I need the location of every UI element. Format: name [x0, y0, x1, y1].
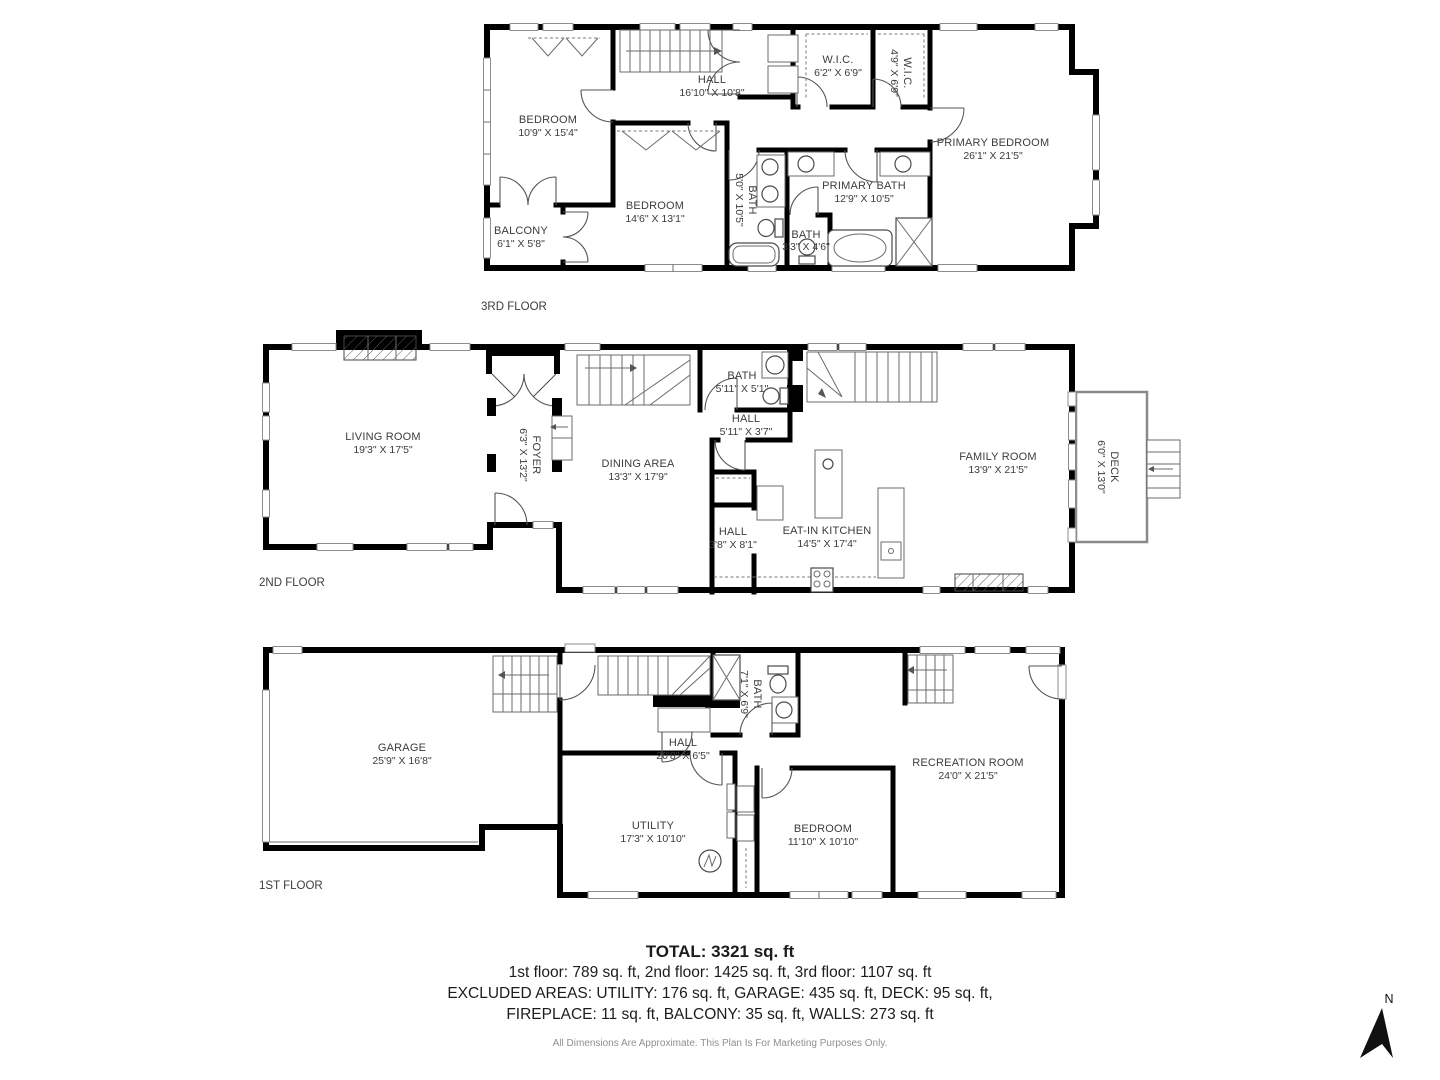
room-label-garage: GARAGE 25'9" X 16'8"	[372, 742, 432, 767]
sink-icon	[823, 459, 833, 469]
bathtub-icon	[828, 230, 892, 266]
svg-text:3'3" X 4'6": 3'3" X 4'6"	[782, 241, 830, 253]
room-label-hall-3: HALL 16'10" X 10'8"	[679, 74, 744, 99]
floor-2-stairs-main	[807, 352, 937, 402]
svg-text:UTILITY: UTILITY	[632, 820, 675, 832]
svg-text:6'2" X 6'9": 6'2" X 6'9"	[814, 67, 862, 79]
room-label-family-room: FAMILY ROOM 13'9" X 21'5"	[959, 451, 1037, 476]
svg-text:BEDROOM: BEDROOM	[626, 200, 684, 212]
room-label-hall-1f: HALL 20'8" X 6'5"	[656, 737, 710, 762]
svg-text:25'9" X 16'8": 25'9" X 16'8"	[372, 755, 432, 767]
svg-text:13'9" X 21'5": 13'9" X 21'5"	[968, 464, 1028, 476]
svg-text:24'0" X 21'5": 24'0" X 21'5"	[938, 770, 998, 782]
room-label-primary-bath: PRIMARY BATH 12'9" X 10'5"	[822, 180, 906, 205]
shower-icon	[713, 655, 740, 700]
svg-text:BALCONY: BALCONY	[494, 225, 548, 237]
svg-text:LIVING ROOM: LIVING ROOM	[345, 431, 421, 443]
svg-text:5'11" X 5'1": 5'11" X 5'1"	[716, 383, 769, 395]
sink-icon	[762, 186, 778, 202]
svg-text:12'9" X 10'5": 12'9" X 10'5"	[834, 193, 894, 205]
room-label-bedroom-1f: BEDROOM 11'10" X 10'10"	[788, 823, 859, 848]
svg-text:16'10" X 10'8": 16'10" X 10'8"	[679, 87, 744, 99]
svg-text:HALL: HALL	[732, 413, 760, 425]
sink-icon	[798, 156, 814, 172]
toilet-icon	[758, 219, 783, 237]
svg-text:BEDROOM: BEDROOM	[519, 114, 577, 126]
floor-3-plan: BEDROOM 10'9" X 15'4" HALL 16'10" X 10'8…	[481, 24, 1100, 314]
floor-1-label: 1ST FLOOR	[259, 880, 323, 892]
stove-icon	[811, 568, 833, 592]
room-label-primary-bedroom: PRIMARY BEDROOM 26'1" X 21'5"	[937, 137, 1050, 162]
excluded-areas-line-2: FIREPLACE: 11 sq. ft, BALCONY: 35 sq. ft…	[0, 1004, 1440, 1025]
toilet-icon	[768, 666, 788, 693]
hall-closet	[658, 708, 710, 732]
svg-text:10'9" X 15'4": 10'9" X 15'4"	[518, 127, 578, 139]
svg-text:BATH: BATH	[746, 185, 758, 214]
svg-text:W.I.C.: W.I.C.	[901, 57, 913, 88]
floor-2-plan: LIVING ROOM 19'3" X 17'5" FOYER 6'3" X 1…	[259, 330, 1180, 594]
fireplace-living-room	[336, 330, 422, 360]
room-label-dining-area: DINING AREA 13'3" X 17'9"	[601, 458, 675, 483]
sink-icon	[776, 702, 792, 718]
room-label-foyer: FOYER 6'3" X 13'2"	[517, 428, 542, 482]
svg-text:W.I.C.: W.I.C.	[822, 54, 853, 66]
svg-text:6'3" X 13'2": 6'3" X 13'2"	[517, 428, 529, 482]
svg-text:14'6" X 13'1": 14'6" X 13'1"	[625, 213, 685, 225]
floor-1-stairs-main	[598, 656, 710, 695]
sink-icon	[766, 356, 784, 374]
room-label-recreation-room: RECREATION ROOM 24'0" X 21'5"	[912, 757, 1024, 782]
garage-door-side	[263, 690, 270, 842]
floor-1-plan: GARAGE 25'9" X 16'8" HALL 20'8" X 6'5" B…	[259, 644, 1066, 899]
svg-text:BATH: BATH	[791, 229, 820, 241]
svg-text:7'1" X 6'9": 7'1" X 6'9"	[738, 670, 750, 718]
room-label-wic-1: W.I.C. 6'2" X 6'9"	[814, 54, 862, 79]
svg-text:6'0" X 13'0": 6'0" X 13'0"	[1095, 440, 1107, 494]
excluded-areas-line-1: EXCLUDED AREAS: UTILITY: 176 sq. ft, GAR…	[0, 983, 1440, 1004]
shower-icon	[896, 218, 932, 266]
floor-1-stairs-entry	[493, 656, 557, 712]
svg-text:3'8" X 8'1": 3'8" X 8'1"	[709, 539, 757, 551]
floor-3-label: 3RD FLOOR	[481, 301, 547, 313]
svg-text:BEDROOM: BEDROOM	[794, 823, 852, 835]
floor-3-stairs	[620, 30, 722, 72]
svg-text:13'3" X 17'9": 13'3" X 17'9"	[608, 471, 668, 483]
kitchen-counter	[878, 488, 904, 578]
svg-text:DECK: DECK	[1108, 451, 1120, 483]
sink-icon	[762, 159, 778, 175]
deck	[1068, 392, 1180, 542]
room-label-bath-1: BATH 5'0" X 10'5"	[733, 173, 758, 227]
floor-plan-page: BEDROOM 10'9" X 15'4" HALL 16'10" X 10'8…	[0, 0, 1440, 1080]
utility-fixtures	[699, 784, 735, 872]
dishwasher-icon	[881, 542, 901, 560]
floor-2-label: 2ND FLOOR	[259, 577, 325, 589]
svg-text:19'3" X 17'5": 19'3" X 17'5"	[353, 444, 413, 456]
svg-text:5'11" X 3'7": 5'11" X 3'7"	[720, 426, 773, 438]
svg-text:HALL: HALL	[669, 737, 697, 749]
north-arrow-icon	[1352, 1006, 1412, 1066]
room-label-wic-2: W.I.C. 4'9" X 6'9"	[888, 49, 913, 97]
refrigerator-icon	[757, 486, 783, 520]
svg-text:RECREATION ROOM: RECREATION ROOM	[912, 757, 1024, 769]
svg-text:PRIMARY BEDROOM: PRIMARY BEDROOM	[937, 137, 1050, 149]
room-label-deck: DECK 6'0" X 13'0"	[1095, 440, 1120, 494]
room-label-bath-1f: BATH 7'1" X 6'9"	[738, 670, 763, 718]
fireplace-family-room	[955, 574, 1023, 591]
svg-text:17'3" X 10'10": 17'3" X 10'10"	[620, 833, 685, 845]
floor-2-stairs-dining	[577, 355, 690, 405]
svg-text:FAMILY ROOM: FAMILY ROOM	[959, 451, 1037, 463]
room-label-living-room: LIVING ROOM 19'3" X 17'5"	[345, 431, 421, 456]
room-label-balcony: BALCONY 6'1" X 5'8"	[494, 225, 548, 250]
svg-text:EAT-IN KITCHEN: EAT-IN KITCHEN	[783, 525, 872, 537]
room-label-hall-upper: HALL 5'11" X 3'7"	[720, 413, 773, 438]
garage-features	[263, 690, 479, 842]
room-label-hall-lower: HALL 3'8" X 8'1"	[709, 526, 757, 551]
svg-text:HALL: HALL	[719, 526, 747, 538]
svg-text:14'5" X 17'4": 14'5" X 17'4"	[797, 538, 857, 550]
water-heater-icon	[699, 850, 721, 872]
room-label-utility: UTILITY 17'3" X 10'10"	[620, 820, 685, 845]
north-label: N	[1366, 992, 1412, 1006]
floor-areas: 1st floor: 789 sq. ft, 2nd floor: 1425 s…	[0, 962, 1440, 983]
floor-plan-canvas: BEDROOM 10'9" X 15'4" HALL 16'10" X 10'8…	[0, 0, 1440, 1080]
svg-text:BATH: BATH	[727, 370, 756, 382]
svg-text:5'0" X 10'5": 5'0" X 10'5"	[733, 173, 745, 227]
svg-text:DINING AREA: DINING AREA	[601, 458, 675, 470]
svg-text:FOYER: FOYER	[530, 436, 542, 475]
svg-text:6'1" X 5'8": 6'1" X 5'8"	[497, 238, 545, 250]
floor-3-bath-fixtures	[729, 152, 932, 266]
room-label-bath-2f: BATH 5'11" X 5'1"	[716, 370, 769, 395]
svg-text:GARAGE: GARAGE	[378, 742, 426, 754]
svg-text:HALL: HALL	[698, 74, 726, 86]
room-label-bedroom-2: BEDROOM 14'6" X 13'1"	[625, 200, 685, 225]
room-label-bedroom-1: BEDROOM 10'9" X 15'4"	[518, 114, 578, 139]
total-area: TOTAL: 3321 sq. ft	[0, 941, 1440, 962]
bathtub-icon	[729, 243, 779, 266]
svg-text:20'8" X 6'5": 20'8" X 6'5"	[656, 750, 710, 762]
room-label-eat-in-kitchen: EAT-IN KITCHEN 14'5" X 17'4"	[783, 525, 872, 550]
area-summary: TOTAL: 3321 sq. ft 1st floor: 789 sq. ft…	[0, 941, 1440, 1049]
front-door-sidelight	[565, 644, 595, 652]
svg-text:11'10" X 10'10": 11'10" X 10'10"	[788, 836, 859, 848]
deck-stairs	[1147, 440, 1180, 498]
disclaimer: All Dimensions Are Approximate. This Pla…	[0, 1038, 1440, 1049]
svg-text:4'9" X 6'9": 4'9" X 6'9"	[888, 49, 900, 97]
svg-text:26'1" X 21'5": 26'1" X 21'5"	[963, 150, 1023, 162]
sink-icon	[895, 156, 911, 172]
svg-text:BATH: BATH	[751, 679, 763, 708]
svg-text:PRIMARY BATH: PRIMARY BATH	[822, 180, 906, 192]
floor-1-stairs-rec	[907, 655, 953, 703]
north-compass: N	[1352, 992, 1412, 1072]
